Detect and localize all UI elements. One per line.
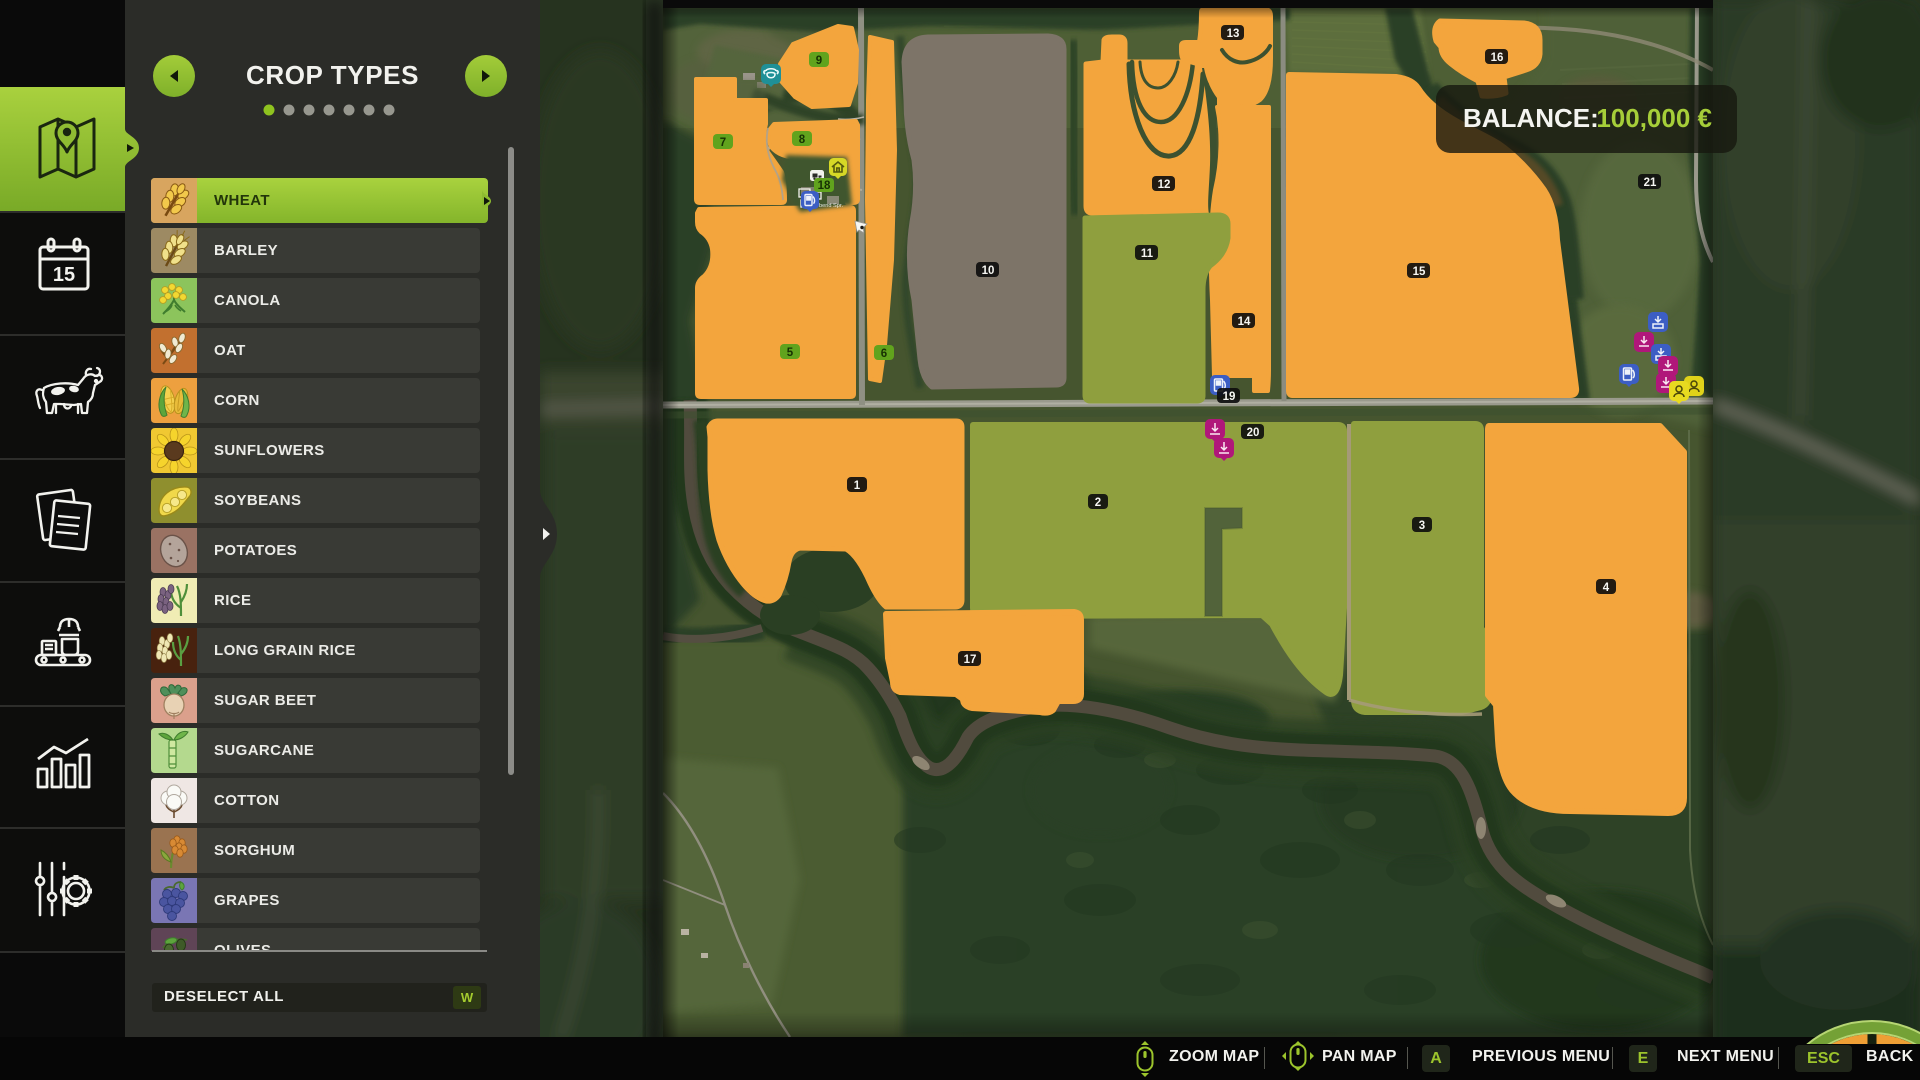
svg-text:7: 7: [720, 137, 726, 149]
svg-text:3: 3: [1419, 520, 1425, 532]
svg-text:9: 9: [816, 55, 822, 67]
svg-text:19: 19: [1223, 391, 1236, 403]
svg-text:1: 1: [854, 480, 861, 492]
svg-text:4: 4: [1603, 582, 1610, 594]
svg-text:17: 17: [964, 654, 977, 666]
svg-text:18: 18: [818, 180, 831, 192]
svg-text:5: 5: [787, 347, 794, 359]
svg-text:15: 15: [1413, 266, 1426, 278]
svg-text:13: 13: [1227, 28, 1240, 40]
svg-text:12: 12: [1158, 179, 1171, 191]
svg-text:2: 2: [1095, 497, 1101, 509]
svg-text:6: 6: [881, 348, 887, 360]
svg-text:8: 8: [799, 134, 806, 146]
svg-text:10: 10: [982, 265, 995, 277]
svg-text:16: 16: [1491, 52, 1504, 64]
svg-text:15: 15: [53, 264, 75, 286]
svg-text:14: 14: [1238, 316, 1251, 328]
svg-text:21: 21: [1644, 177, 1657, 189]
svg-text:11: 11: [1141, 248, 1154, 260]
svg-text:20: 20: [1247, 427, 1260, 439]
